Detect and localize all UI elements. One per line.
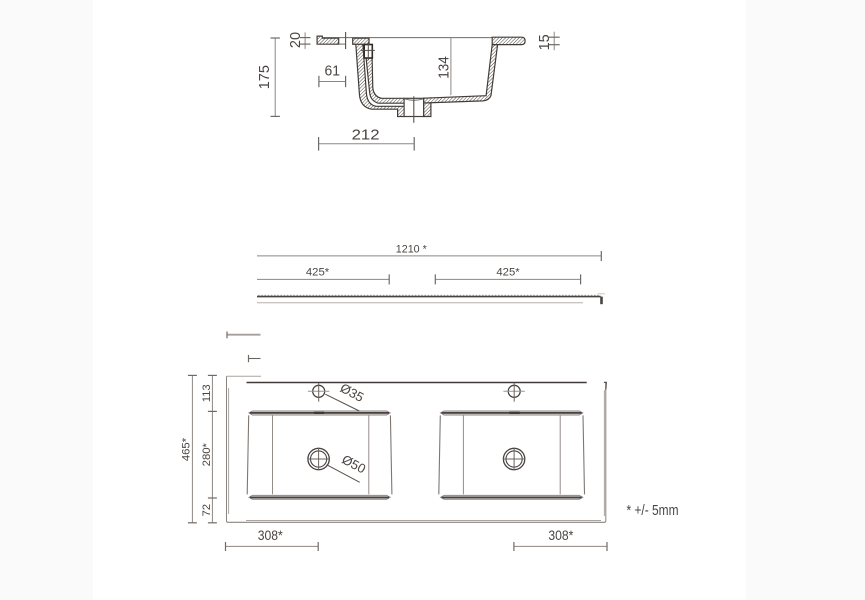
svg-text:308*: 308* xyxy=(258,528,284,543)
svg-text:425*: 425* xyxy=(496,266,520,278)
svg-text:1210 *: 1210 * xyxy=(396,243,428,255)
svg-text:280*: 280* xyxy=(201,442,213,466)
svg-text:61: 61 xyxy=(325,64,341,80)
svg-text:134: 134 xyxy=(436,56,452,79)
svg-text:15: 15 xyxy=(537,34,553,50)
svg-text:* +/- 5mm: * +/- 5mm xyxy=(627,502,679,519)
svg-text:308*: 308* xyxy=(548,528,574,543)
svg-text:72: 72 xyxy=(201,504,213,517)
svg-text:175: 175 xyxy=(257,65,273,89)
svg-text:465*: 465* xyxy=(181,437,193,461)
svg-text:20: 20 xyxy=(288,32,304,48)
svg-text:425*: 425* xyxy=(306,266,330,278)
svg-text:212: 212 xyxy=(352,128,380,144)
svg-text:113: 113 xyxy=(201,384,213,402)
